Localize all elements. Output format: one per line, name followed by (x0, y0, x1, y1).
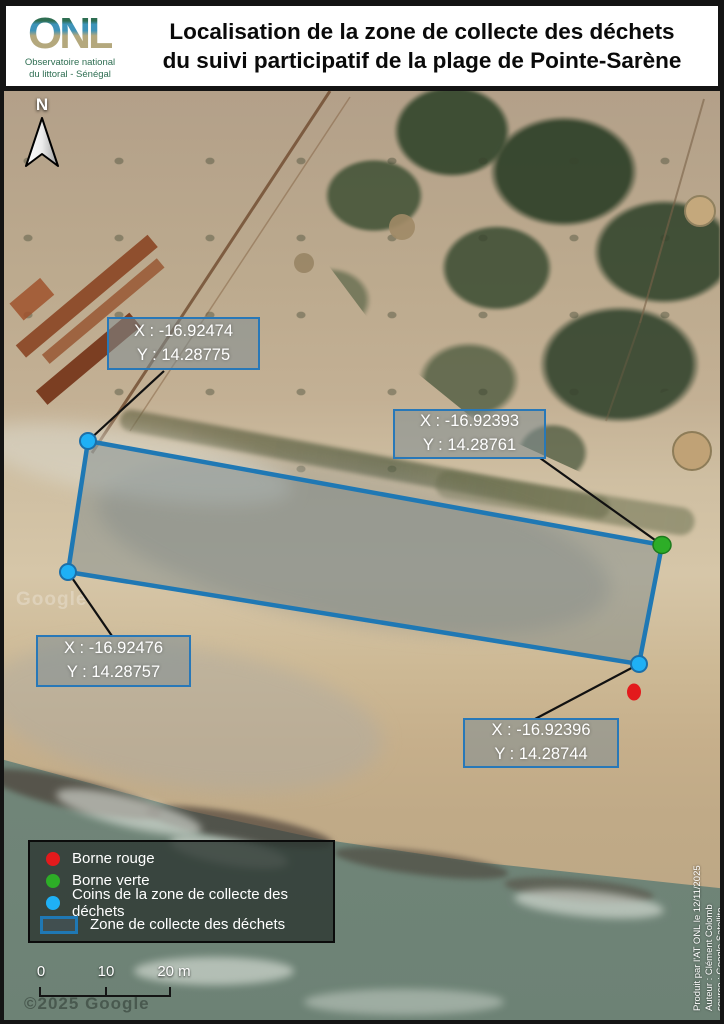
coordinate-y: Y : 14.28744 (465, 743, 617, 767)
coordinate-y: Y : 14.28775 (109, 344, 258, 368)
callout-line-northwest (88, 371, 164, 441)
coordinate-box-southeast: X : -16.92396 Y : 14.28744 (463, 718, 619, 768)
coordinate-box-northwest: X : -16.92474 Y : 14.28775 (107, 317, 260, 370)
page-title-line1: Localisation de la zone de collecte des … (134, 17, 710, 46)
zone-de-collecte-polygon (68, 441, 662, 664)
coordinate-x: X : -16.92396 (465, 719, 617, 743)
legend-item-coins-zone: Coins de la zone de collecte des déchets (40, 894, 323, 911)
credits-produced-by: Produit par l'AT ONL le 12/11/2025 (692, 865, 704, 1011)
red-dot-icon (46, 852, 60, 866)
legend-label: Borne rouge (72, 850, 155, 867)
legend-item-borne-rouge: Borne rouge (40, 850, 323, 867)
cyan-dot-icon (46, 896, 60, 910)
callout-line-southeast (535, 664, 639, 719)
coordinate-y: Y : 14.28761 (395, 434, 544, 458)
coordinate-box-northeast: X : -16.92393 Y : 14.28761 (393, 409, 546, 459)
map-layout-page: ONL Observatoire national du littoral - … (0, 0, 724, 1024)
callout-line-southwest (68, 572, 112, 636)
legend-item-zone: Zone de collecte des déchets (40, 916, 323, 933)
legend: Borne rouge Borne verte Coins de la zone… (28, 840, 335, 943)
scalebar-mid-tick (105, 987, 107, 997)
coordinate-x: X : -16.92476 (38, 637, 189, 661)
page-title-line2: du suivi participatif de la plage de Poi… (134, 46, 710, 75)
coordinate-x: X : -16.92474 (109, 320, 258, 344)
borne-verte-marker (653, 537, 671, 554)
map-canvas: Google ©2025 Google N (4, 91, 720, 1020)
north-arrow: N (20, 95, 64, 175)
zone-corner-marker (60, 564, 76, 580)
borne-rouge-marker (627, 684, 641, 701)
coordinate-x: X : -16.92393 (395, 410, 544, 434)
zone-rectangle-icon (40, 916, 78, 934)
coordinate-y: Y : 14.28757 (38, 661, 189, 685)
zone-corner-marker (631, 656, 647, 672)
scalebar-label-10: 10 (98, 963, 115, 980)
onl-logo-subtitle-line2: du littoral - Sénégal (25, 69, 115, 80)
legend-label: Coins de la zone de collecte des déchets (72, 886, 323, 920)
scalebar-label-20m: 20 m (157, 963, 190, 980)
coordinate-box-southwest: X : -16.92476 Y : 14.28757 (36, 635, 191, 687)
credits-author: Auteur : Clément Colomb (704, 865, 716, 1011)
scalebar (39, 987, 171, 997)
header: ONL Observatoire national du littoral - … (4, 4, 720, 88)
north-arrow-icon (24, 116, 60, 170)
onl-logo-acronym: ONL (28, 12, 112, 56)
onl-logo: ONL Observatoire national du littoral - … (6, 12, 134, 80)
zone-corner-marker (80, 433, 96, 449)
map-credits: Produit par l'AT ONL le 12/11/2025 Auteu… (692, 865, 720, 1011)
scalebar-label-0: 0 (37, 963, 45, 980)
onl-logo-subtitle: Observatoire national du littoral - Séné… (25, 57, 115, 80)
legend-label: Zone de collecte des déchets (90, 916, 285, 933)
page-title: Localisation de la zone de collecte des … (134, 17, 718, 76)
onl-logo-subtitle-line1: Observatoire national (25, 57, 115, 68)
green-dot-icon (46, 874, 60, 888)
north-label: N (20, 95, 64, 115)
credits-source: source : Google Satellite (715, 865, 720, 1011)
